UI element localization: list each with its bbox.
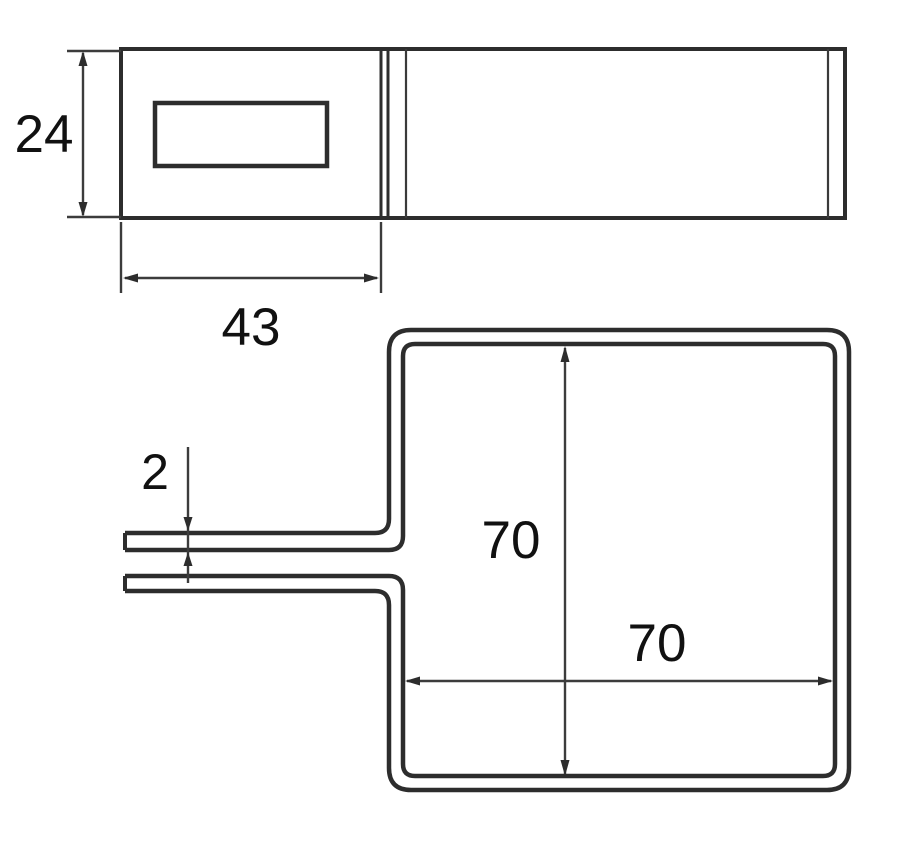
dimension-70-vertical: 70 — [482, 346, 570, 776]
arrow-up — [184, 552, 193, 566]
arrow-down — [561, 760, 570, 776]
arrow-up — [561, 346, 570, 362]
technical-drawing-page: 24 43 2 70 70 — [0, 0, 910, 853]
top-view-outline — [121, 49, 845, 218]
profile-inner-contour — [125, 344, 835, 776]
arrow-down — [184, 517, 193, 531]
arrow-right — [818, 677, 833, 686]
dimension-label-24: 24 — [15, 105, 74, 164]
arrow-up — [79, 51, 88, 66]
technical-drawing: 24 43 2 70 70 — [0, 0, 910, 853]
arrow-right — [364, 274, 379, 283]
dimension-43: 43 — [121, 222, 381, 357]
top-view — [121, 49, 845, 218]
dimension-label-43: 43 — [222, 298, 281, 357]
arrow-left — [405, 677, 420, 686]
dimension-2: 2 — [141, 444, 192, 583]
dimension-24: 24 — [15, 51, 121, 217]
arrow-down — [79, 202, 88, 217]
dimension-70-horizontal: 70 — [405, 614, 833, 686]
dimension-label-70-width: 70 — [628, 614, 687, 673]
arrow-left — [123, 274, 138, 283]
slot-cutout — [155, 103, 327, 166]
dimension-label-2: 2 — [141, 444, 169, 500]
dimension-label-70-height: 70 — [482, 511, 541, 570]
